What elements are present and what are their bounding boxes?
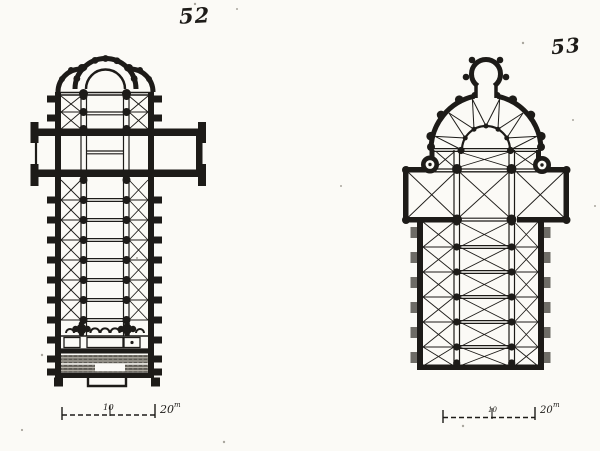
plan-wall	[517, 217, 569, 223]
plan-wall	[564, 167, 570, 223]
paper-speck	[194, 3, 196, 5]
plan-pier-dot	[80, 125, 88, 133]
plan-wall	[154, 96, 162, 103]
paper-speck	[340, 185, 342, 187]
plan-pier-dot	[507, 147, 514, 154]
axial-chapel	[472, 60, 501, 89]
plan-pier-dot	[426, 132, 435, 141]
plan-pier-dot	[80, 276, 88, 284]
plan-pier-dot	[123, 92, 131, 100]
plan-pier-dot	[80, 296, 88, 304]
plan-pier-dot	[508, 293, 515, 300]
plan-path	[431, 96, 475, 150]
plan-line	[472, 99, 474, 129]
plan-wall	[154, 356, 162, 363]
plan-wall	[47, 197, 55, 204]
scale-52-end-unit: m	[174, 401, 181, 409]
scale-52-mid-label: 10	[103, 403, 114, 413]
plan-pier-dot	[453, 243, 460, 250]
plan-pier-dot	[428, 163, 431, 166]
paper-speck	[462, 425, 464, 427]
plan-buttress	[544, 352, 551, 363]
plan-buttress	[544, 327, 551, 338]
plan-wall	[47, 257, 55, 264]
plan-path	[75, 58, 136, 89]
plan-pier-dot	[131, 75, 138, 82]
paper-speck	[594, 205, 596, 207]
plan-wall	[154, 257, 162, 264]
plan-line	[486, 99, 500, 126]
plan-wall	[154, 317, 162, 324]
scale-bar-53: 10 20 m	[443, 401, 560, 423]
plan-buttress	[411, 227, 418, 238]
plan-pier-dot	[508, 268, 515, 275]
plan-pier-dot	[563, 216, 571, 224]
plan-wall	[154, 115, 162, 122]
plan-pier-dot	[537, 132, 546, 141]
plan-pier-dot	[78, 64, 86, 72]
plan-pier-dot	[508, 95, 517, 104]
plan-wall	[417, 365, 544, 371]
plan-wall	[31, 122, 39, 143]
plan-pier-dot	[68, 67, 74, 73]
plan-pier-dot	[73, 75, 80, 82]
hatched-band	[61, 355, 148, 363]
plan-pier-dot	[80, 108, 88, 116]
plan-path	[88, 378, 126, 386]
plan-line	[449, 113, 465, 138]
plan-buttress	[544, 277, 551, 288]
plan-pier-dot	[130, 341, 133, 344]
plan-wall	[151, 378, 160, 387]
narthex-cell	[64, 338, 80, 348]
plan-line	[507, 136, 537, 138]
plan-pier-dot	[508, 343, 515, 350]
plan-pier-dot	[80, 196, 88, 204]
plan-wall	[154, 277, 162, 284]
plan-pier-dot	[123, 256, 131, 264]
plan-buttress	[411, 302, 418, 313]
plan-pier-dot	[123, 176, 131, 184]
scale-53-mid-label: 10	[488, 406, 497, 414]
plan-pier-dot	[469, 57, 476, 64]
plan-pier-dot	[540, 163, 543, 166]
plan-buttress	[411, 327, 418, 338]
plan-wall	[417, 222, 423, 370]
plan-pier-dot	[79, 321, 85, 327]
plan-pier-dot	[453, 359, 460, 366]
plan-wall	[47, 96, 55, 103]
plan-path	[90, 328, 99, 333]
plan-pier-dot	[453, 268, 460, 275]
plan-wall	[154, 369, 162, 376]
plan-buttress	[544, 302, 551, 313]
paper-speck	[236, 8, 238, 10]
plan-wall	[154, 237, 162, 244]
plan-wall	[47, 115, 55, 122]
plan-path	[136, 329, 144, 333]
plan-path	[110, 328, 119, 333]
paper-speck	[136, 257, 138, 259]
paper-speck	[522, 42, 524, 44]
plan-pier-dot	[80, 236, 88, 244]
plan-path	[100, 328, 109, 333]
plan-path	[497, 96, 541, 150]
plan-pier-dot	[114, 57, 121, 64]
paper-speck	[572, 119, 574, 121]
plan-pier-dot	[453, 293, 460, 300]
plan-wall	[196, 129, 203, 178]
plan-path	[66, 329, 74, 333]
plan-wall	[154, 337, 162, 344]
plan-pier-dot	[123, 276, 131, 284]
plan-pier-dot	[102, 55, 109, 62]
plan-pier-dot	[80, 92, 88, 100]
plan-wall	[47, 356, 55, 363]
plan-pier-dot	[507, 164, 517, 174]
plan-line	[507, 113, 523, 138]
scale-bar-52: 10 20 m	[62, 401, 181, 420]
paper-speck	[223, 441, 225, 443]
plan-pier-dot	[59, 76, 65, 82]
plan-pier-dot	[527, 111, 536, 120]
plan-wall	[55, 349, 154, 354]
plan-wall	[31, 164, 39, 186]
plan-wall	[154, 217, 162, 224]
plan-line	[498, 99, 500, 129]
plan-pier-dot	[453, 343, 460, 350]
plan-pier-dot	[125, 64, 133, 72]
plan-buttress	[411, 352, 418, 363]
plan-buttress	[544, 227, 551, 238]
plan-path	[462, 126, 510, 150]
plan-pier-dot	[123, 216, 131, 224]
plan-pier-dot	[123, 125, 131, 133]
plan-wall	[47, 217, 55, 224]
plan-pier-dot	[123, 236, 131, 244]
paper-speck	[21, 429, 23, 431]
plan-wall	[47, 277, 55, 284]
plan-wall	[154, 197, 162, 204]
plan-pier-dot	[437, 111, 446, 120]
plan-wall	[34, 170, 202, 178]
plan-wall	[47, 297, 55, 304]
paper-speck	[41, 354, 43, 356]
plan-wall	[55, 373, 154, 379]
plan-pier-dot	[123, 108, 131, 116]
plan-pier-dot	[452, 164, 462, 174]
plan-pier-dot	[130, 326, 136, 332]
plan-pier-dot	[137, 67, 143, 73]
plan-wall	[403, 217, 455, 223]
plan-wall	[538, 222, 544, 370]
plan-wall	[47, 369, 55, 376]
scale-52-end-value: 20	[159, 403, 174, 416]
plan-wall	[34, 129, 202, 137]
church-plans-drawing: 10 20 m 10 20 m	[0, 0, 600, 451]
plan-pier-dot	[123, 196, 131, 204]
plan-pier-dot	[453, 318, 460, 325]
plan-pier-dot	[508, 318, 515, 325]
plan-pier-dot	[455, 95, 464, 104]
plan-wall	[47, 337, 55, 344]
plan-wall	[47, 237, 55, 244]
plan-wall	[54, 378, 63, 387]
plan-pier-dot	[508, 243, 515, 250]
plan-buttress	[544, 252, 551, 263]
plan-pier-dot	[92, 57, 99, 64]
plan-line	[498, 113, 523, 129]
plan-buttress	[411, 277, 418, 288]
plan-wall	[95, 364, 125, 371]
plan-pier-dot	[453, 218, 460, 225]
plan-line	[435, 136, 465, 138]
narthex-cell	[87, 338, 123, 348]
scale-53-end-value: 20	[539, 405, 553, 416]
plan-pier-dot	[80, 256, 88, 264]
plan-pier-dot	[123, 296, 131, 304]
plan-wall	[154, 297, 162, 304]
plan-52-drawing	[31, 55, 207, 386]
scale-53-end-unit: m	[553, 401, 560, 409]
plan-pier-dot	[124, 321, 130, 327]
plan-pier-dot	[508, 359, 515, 366]
plan-pier-dot	[463, 74, 470, 81]
plan-pier-dot	[80, 176, 88, 184]
plan-buttress	[411, 252, 418, 263]
plan-pier-dot	[427, 143, 435, 151]
plan-path	[86, 70, 125, 90]
plan-wall	[47, 317, 55, 324]
plan-pier-dot	[508, 218, 515, 225]
plan-pier-dot	[503, 74, 510, 81]
plan-line	[472, 99, 486, 126]
plan-pier-dot	[80, 216, 88, 224]
plan-pier-dot	[537, 143, 545, 151]
plan-wall	[403, 167, 409, 223]
plan-pier-dot	[497, 57, 504, 64]
engraving-page: 52 53 10 20 m 10 20	[0, 0, 600, 451]
plan-53-drawing	[402, 57, 571, 370]
plan-line	[449, 113, 474, 129]
plan-pier-dot	[146, 76, 152, 82]
